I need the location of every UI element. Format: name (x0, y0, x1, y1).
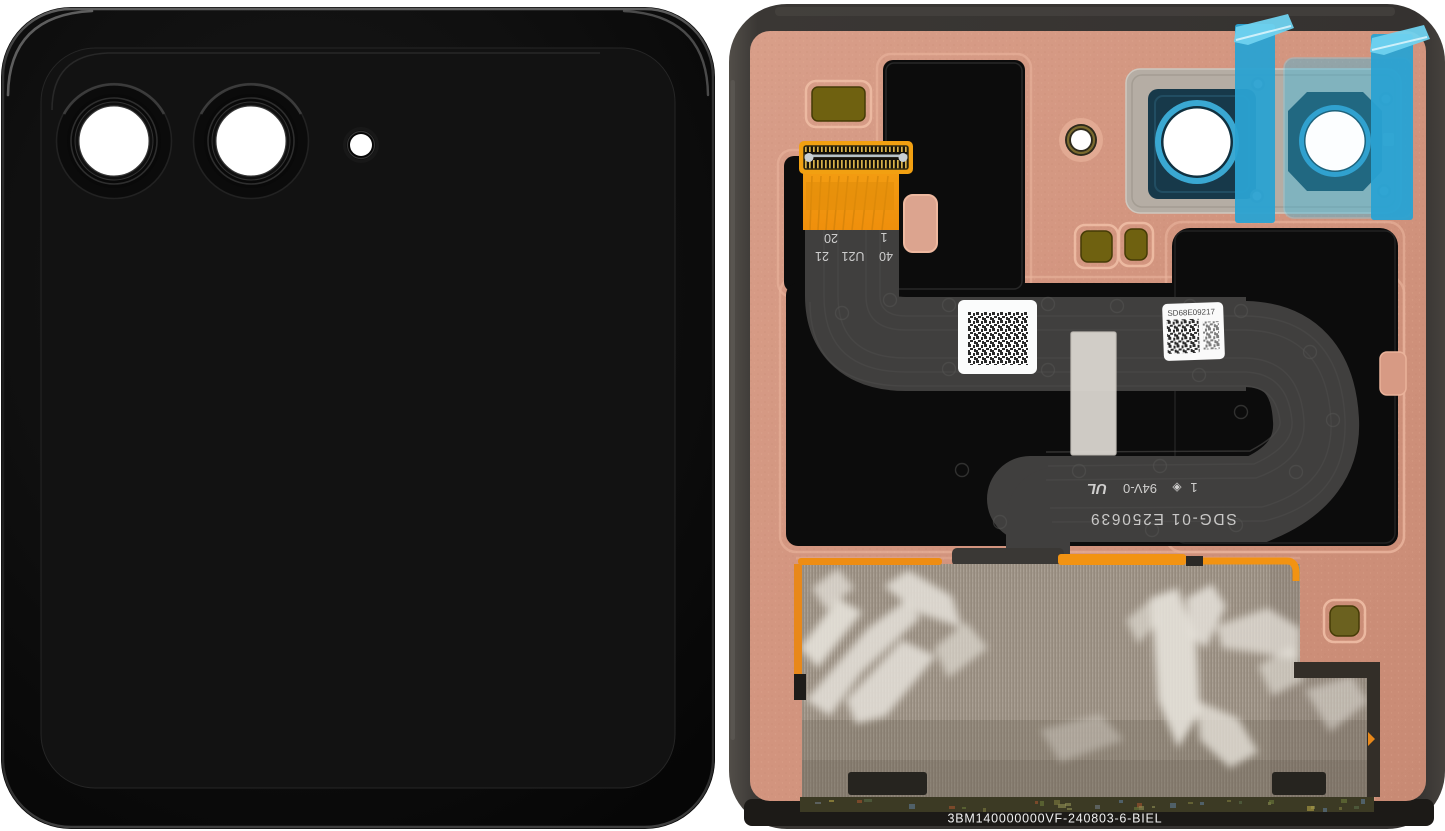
svg-text:20: 20 (824, 231, 838, 245)
svg-text:40: 40 (879, 249, 893, 263)
svg-text:◈: ◈ (1172, 481, 1182, 495)
svg-text:94V-0: 94V-0 (1123, 481, 1157, 496)
svg-text:3BM140000000VF-240803-6-BIEL: 3BM140000000VF-240803-6-BIEL (948, 812, 1163, 826)
svg-text:1: 1 (880, 230, 887, 244)
svg-text:U21: U21 (841, 249, 864, 263)
svg-text:UL: UL (1087, 480, 1107, 497)
svg-text:SD68E09217: SD68E09217 (1167, 307, 1215, 318)
svg-text:21: 21 (815, 249, 829, 263)
svg-text:SDG-01 E250639: SDG-01 E250639 (1089, 510, 1237, 527)
svg-text:1: 1 (1190, 480, 1197, 495)
